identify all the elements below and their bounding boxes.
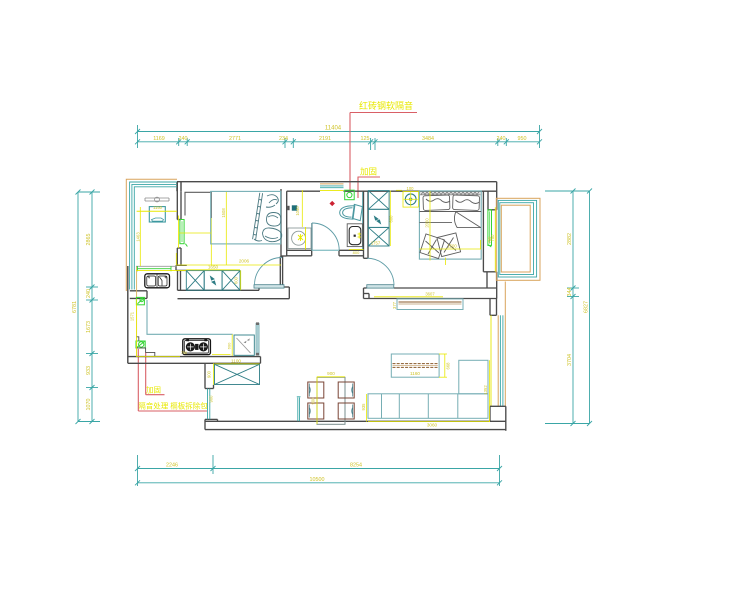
svg-text:600: 600 [389, 215, 394, 223]
svg-text:600: 600 [234, 276, 239, 284]
svg-text:125: 125 [361, 136, 370, 142]
svg-text:234: 234 [279, 136, 288, 142]
svg-text:2771: 2771 [229, 136, 241, 142]
svg-text:1352: 1352 [483, 385, 488, 395]
svg-text:隔音处理 槅板拆除包: 隔音处理 槅板拆除包 [138, 401, 208, 411]
svg-text:935: 935 [361, 403, 366, 411]
svg-text:800: 800 [353, 250, 360, 255]
svg-text:900: 900 [207, 370, 212, 378]
svg-text:1150: 1150 [153, 205, 163, 210]
svg-text:1040: 1040 [295, 206, 300, 216]
svg-text:加固: 加固 [360, 167, 377, 177]
svg-text:240: 240 [497, 136, 506, 142]
svg-text:1673: 1673 [86, 321, 92, 333]
svg-text:1169: 1169 [153, 136, 165, 142]
svg-text:377: 377 [392, 301, 397, 309]
svg-text:2006: 2006 [239, 259, 250, 264]
svg-text:240: 240 [179, 136, 188, 142]
svg-text:100: 100 [407, 186, 415, 191]
svg-text:2000: 2000 [425, 218, 430, 228]
svg-text:1508: 1508 [221, 208, 226, 218]
svg-text:750: 750 [490, 234, 495, 242]
svg-text:加固: 加固 [146, 385, 161, 395]
svg-text:1160: 1160 [410, 371, 420, 376]
svg-text:1463: 1463 [136, 232, 141, 242]
svg-text:750: 750 [181, 351, 187, 355]
svg-text:11404: 11404 [325, 126, 342, 132]
svg-text:8254: 8254 [350, 463, 362, 469]
svg-text:1100: 1100 [231, 358, 241, 363]
svg-text:2882: 2882 [567, 233, 573, 245]
svg-text:600: 600 [226, 342, 231, 349]
svg-text:1757: 1757 [371, 241, 381, 246]
svg-text:344: 344 [567, 288, 573, 297]
svg-text:6827: 6827 [584, 301, 590, 313]
svg-text:1571: 1571 [129, 311, 134, 321]
svg-text:900: 900 [209, 395, 214, 403]
svg-text:950: 950 [518, 136, 527, 142]
svg-text:933: 933 [86, 366, 92, 375]
svg-text:3060: 3060 [427, 423, 438, 428]
svg-text:2865: 2865 [86, 234, 92, 246]
svg-text:3607: 3607 [425, 292, 435, 297]
svg-text:900: 900 [327, 371, 335, 376]
svg-text:3484: 3484 [422, 136, 434, 142]
svg-text:2246: 2246 [166, 463, 178, 469]
svg-text:1500: 1500 [447, 244, 457, 249]
svg-text:6781: 6781 [72, 301, 78, 313]
svg-text:240: 240 [86, 289, 92, 298]
svg-text:668: 668 [446, 362, 451, 370]
svg-text:1070: 1070 [86, 399, 92, 411]
svg-text:红砖钢软隔音: 红砖钢软隔音 [359, 100, 413, 111]
svg-text:3704: 3704 [567, 354, 573, 366]
svg-text:10500: 10500 [310, 477, 325, 483]
svg-text:2191: 2191 [319, 136, 331, 142]
svg-text:1650: 1650 [208, 264, 219, 269]
svg-text:900: 900 [311, 397, 316, 405]
